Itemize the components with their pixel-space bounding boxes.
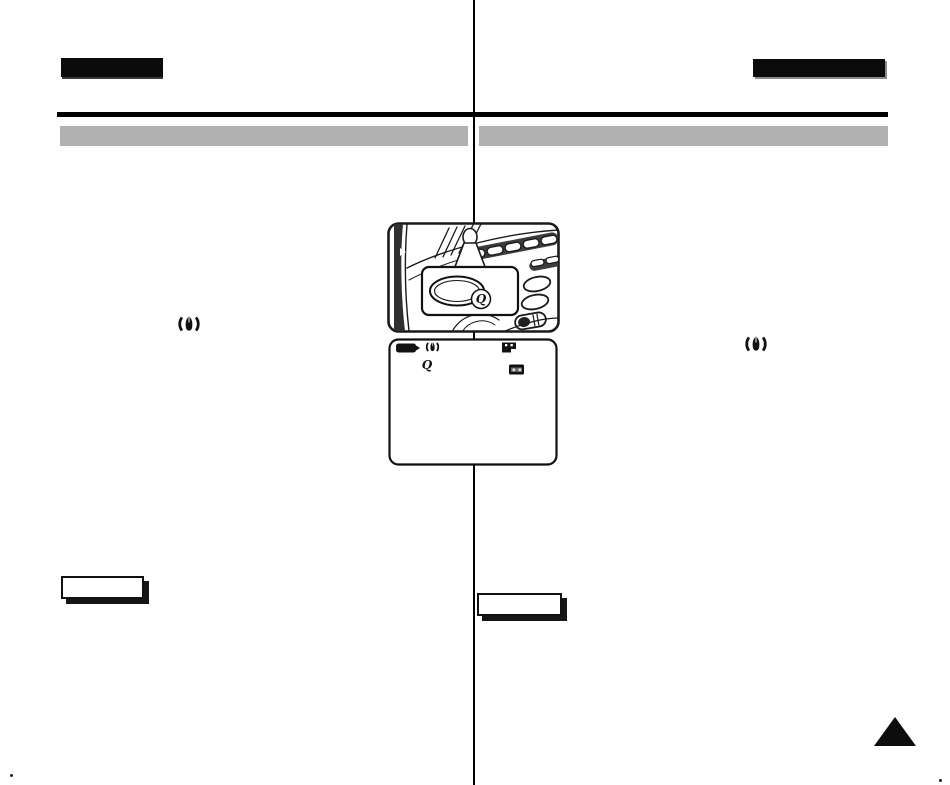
- registration-dot-left: [10, 774, 13, 777]
- osd-display: Q: [388, 338, 558, 466]
- header-tab-left-underline: [62, 77, 163, 79]
- registration-dot-right: [939, 779, 942, 782]
- camcorder-illustration: Q: [387, 222, 560, 333]
- header-tab-right: [753, 59, 885, 77]
- section-title-bar-right: [479, 126, 888, 146]
- note-box-left: [61, 576, 144, 599]
- page-turn-triangle-icon: [874, 717, 916, 746]
- q-button-glyph: Q: [476, 292, 487, 306]
- note-box-right: [477, 593, 562, 616]
- stabilizer-icon: [177, 315, 201, 333]
- stabilizer-icon: [744, 335, 768, 353]
- osd-frame: [390, 340, 557, 465]
- callout-bubble: Q: [422, 267, 518, 315]
- manual-page: Q Q: [0, 0, 950, 785]
- header-tab-left: [61, 58, 163, 77]
- pbzoom-icon: Q: [422, 358, 433, 372]
- section-rule: [57, 112, 888, 117]
- section-title-bar-left: [60, 126, 468, 146]
- cassette-icon: [509, 365, 524, 375]
